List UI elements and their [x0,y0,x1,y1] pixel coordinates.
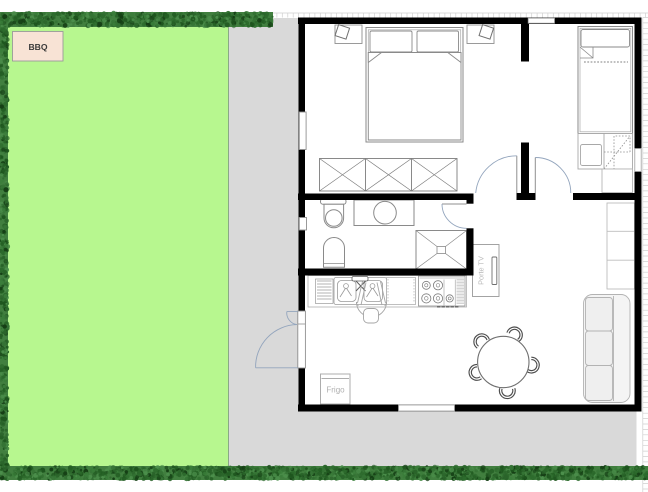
svg-text:Porte TV: Porte TV [477,256,486,285]
svg-text:BBQ: BBQ [28,42,47,52]
svg-text:Frigo: Frigo [326,386,345,395]
